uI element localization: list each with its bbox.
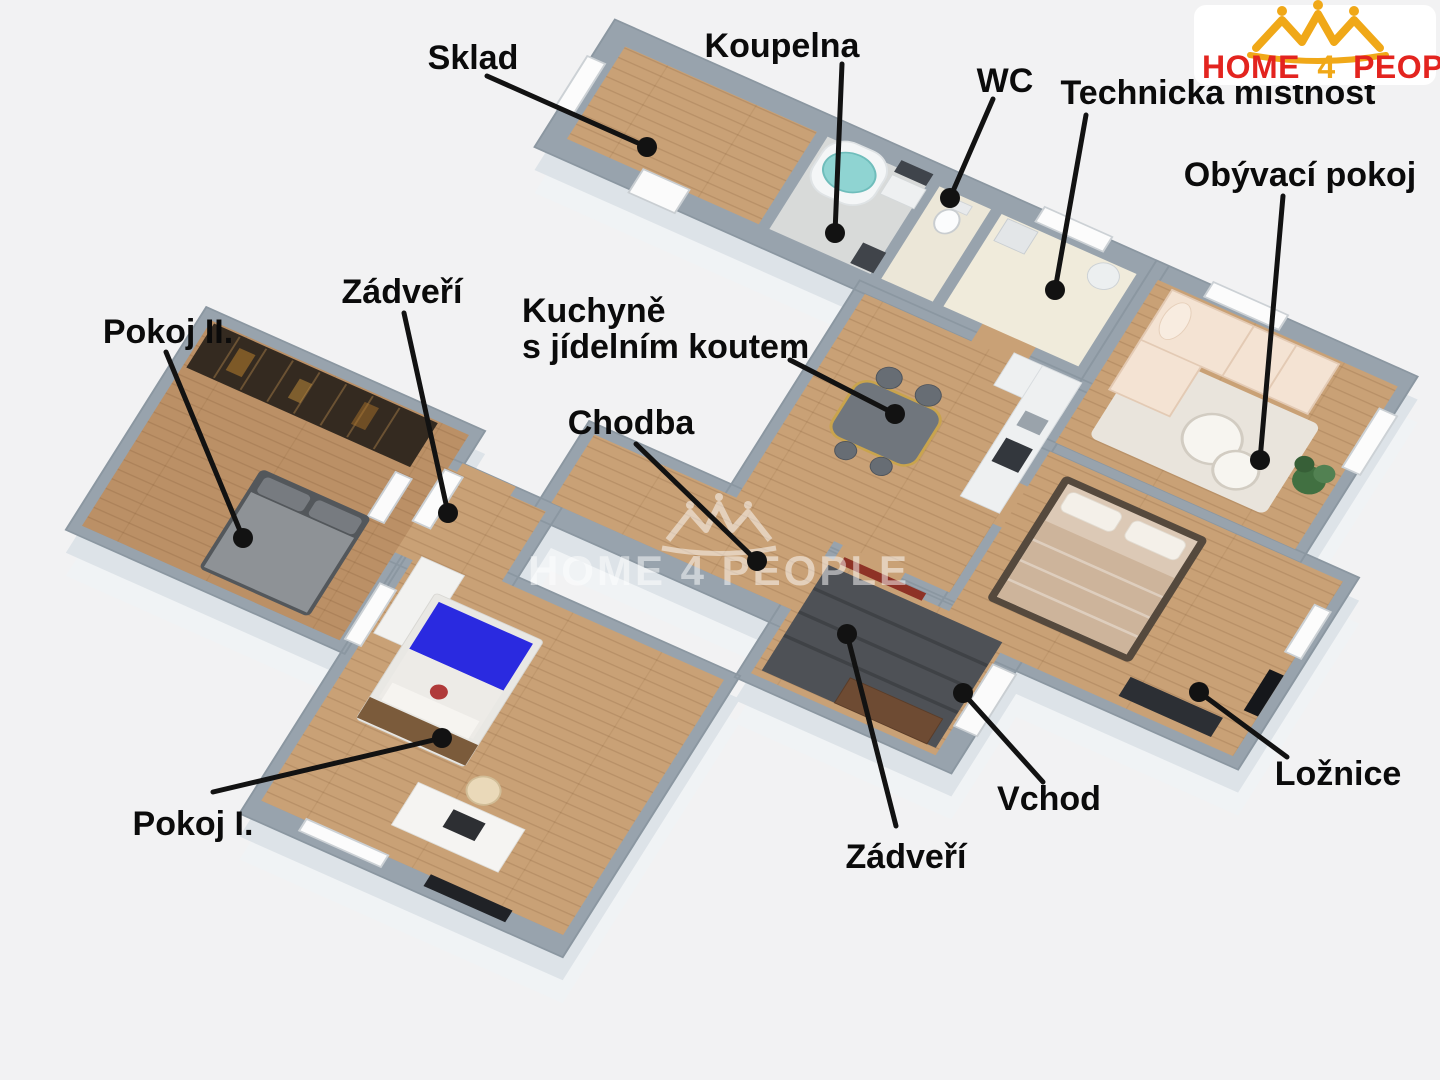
room-label-zadveri-bottom: Zádveří [846, 838, 968, 876]
logo-text-home: HOME [1202, 49, 1300, 85]
leader-dot-obyvaci [1250, 450, 1270, 470]
floorplan-svg: HOME 4 PEOPLE Sklad Koupelna WC [0, 0, 1440, 1080]
logo-text-four: 4 [1317, 49, 1335, 85]
logo-text: HOME 4 PEOPLE [1202, 49, 1440, 85]
logo-crown-dot [1313, 0, 1323, 10]
room-label-zadveri-top: Zádveří [342, 273, 464, 311]
room-label-chodba: Chodba [568, 404, 696, 442]
leader-dot-technicka [1045, 280, 1065, 300]
leader-dot-wc [940, 188, 960, 208]
room-label-kuchyne-line2: s jídelním koutem [522, 328, 809, 366]
leader-dot-loznice [1189, 682, 1209, 702]
logo-crown-dot [1277, 6, 1287, 16]
watermark-crown-dot [744, 501, 752, 509]
logo-text-people: PEOPLE [1353, 49, 1440, 85]
room-label-wc: WC [977, 62, 1034, 100]
leader-dot-vchod [953, 683, 973, 703]
leader-dot-sklad [637, 137, 657, 157]
leader-dot-pokoj2 [233, 528, 253, 548]
floorplan-image: HOME 4 PEOPLE Sklad Koupelna WC [0, 0, 1440, 1080]
leader-dot-zadveri-top [438, 503, 458, 523]
room-label-loznice: Ložnice [1275, 755, 1402, 793]
logo-crown-dot [1349, 6, 1359, 16]
room-label-sklad: Sklad [428, 39, 519, 77]
brand-logo: HOME 4 PEOPLE [1194, 0, 1440, 85]
room-label-koupelna: Koupelna [705, 27, 861, 65]
leader-dot-pokoj1 [432, 728, 452, 748]
leader-dot-kuchyne [885, 404, 905, 424]
watermark-crown-dot [715, 493, 723, 501]
room-label-obyvaci: Obývací pokoj [1184, 156, 1416, 194]
watermark-text: HOME 4 PEOPLE [528, 547, 910, 594]
leader-dot-chodba [747, 551, 767, 571]
room-label-pokoj2: Pokoj II. [103, 313, 233, 351]
leader-dot-zadveri-bottom [837, 624, 857, 644]
room-label-vchod: Vchod [997, 780, 1101, 818]
room-label-kuchyne-line1: Kuchyně [522, 292, 666, 330]
leader-dot-koupelna [825, 223, 845, 243]
room-label-pokoj1: Pokoj I. [133, 805, 254, 843]
